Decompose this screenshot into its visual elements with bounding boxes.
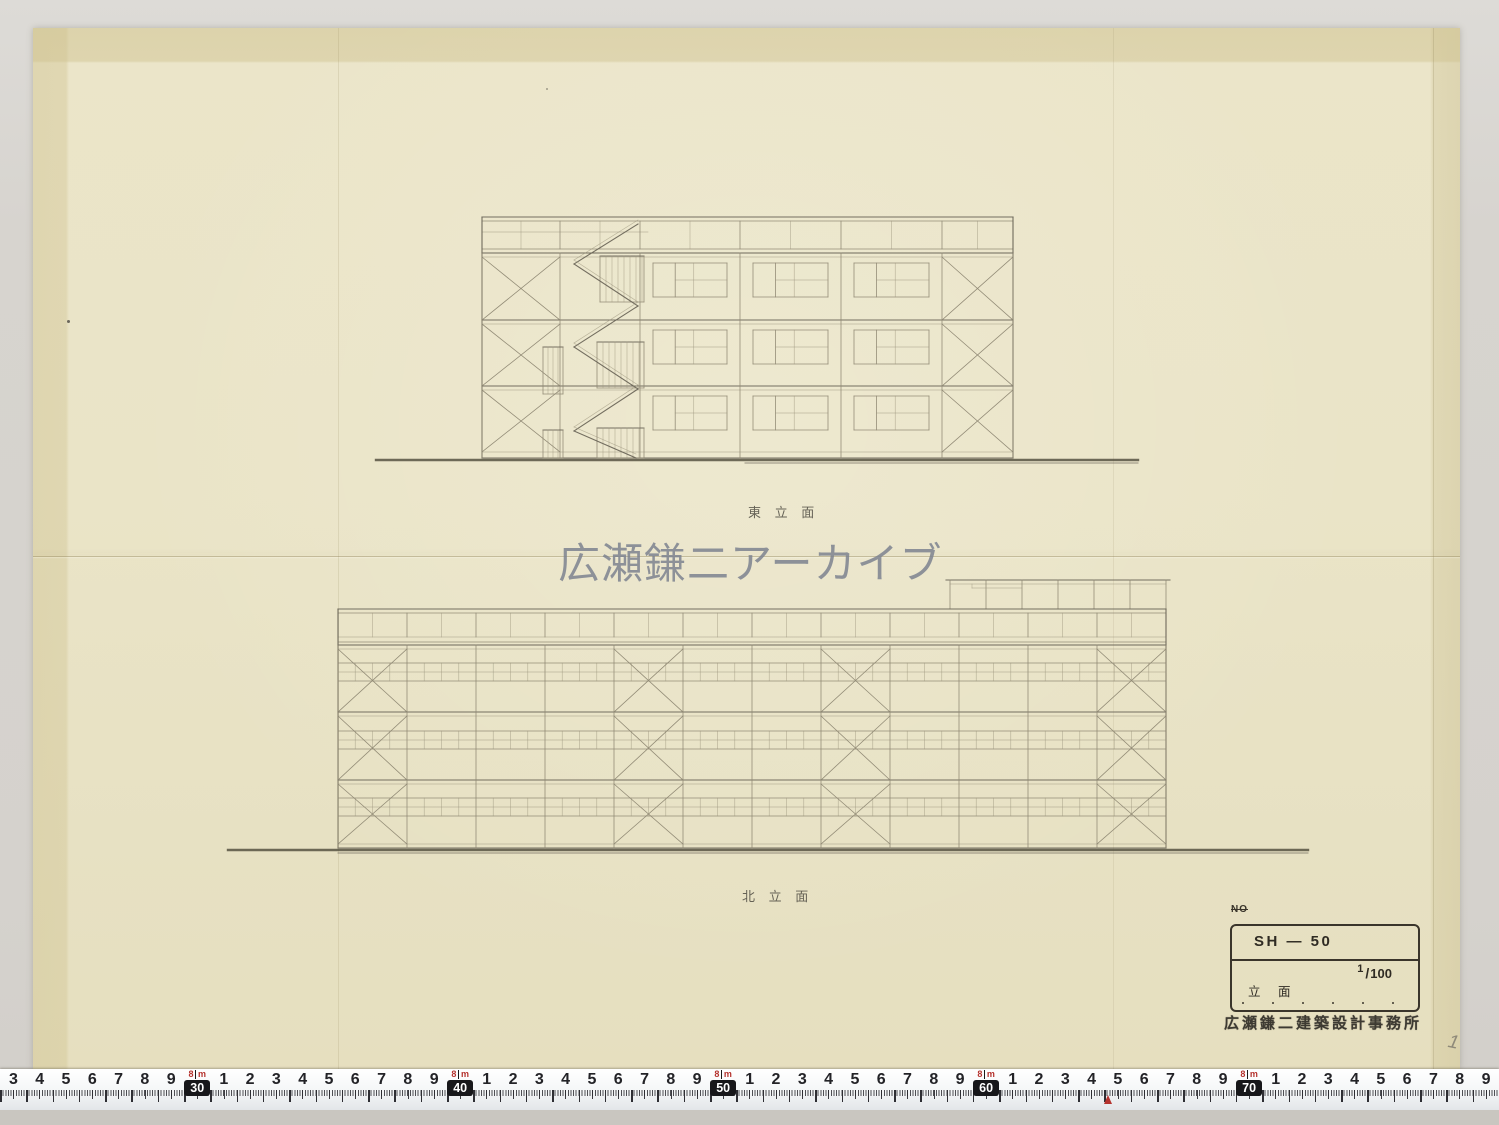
- tape-cm-number: 6: [1131, 1071, 1157, 1089]
- tape-cm-number: 3: [263, 1071, 289, 1089]
- tape-cm-cell: 8: [1183, 1069, 1209, 1110]
- tape-cm-cell: 9: [158, 1069, 184, 1110]
- tape-tick: [1039, 1090, 1040, 1099]
- tape-cm-number: 4: [1341, 1071, 1367, 1089]
- tape-cm-number: 9: [158, 1071, 184, 1089]
- tape-tick: [907, 1090, 908, 1099]
- tape-cm-number: 3: [0, 1071, 26, 1089]
- tape-tick: [1394, 1090, 1396, 1102]
- tape-cm-cell: 2: [1289, 1069, 1315, 1110]
- tape-tick: [237, 1090, 239, 1102]
- tape-tick: [592, 1090, 593, 1099]
- tape-cm-cell: 2: [500, 1069, 526, 1110]
- tape-tick: [539, 1090, 540, 1099]
- tape-tick: [1459, 1090, 1460, 1099]
- tape-tick: [434, 1090, 435, 1099]
- tape-tick: [355, 1090, 356, 1099]
- tape-tick: [263, 1090, 265, 1102]
- tape-cm-cell: 3: [0, 1069, 26, 1110]
- tape-tick: [671, 1090, 672, 1099]
- tape-cm-cell: 7: [105, 1069, 131, 1110]
- tape-tick: [276, 1090, 277, 1099]
- tape-tick: [1157, 1090, 1159, 1102]
- tape-tick: [1223, 1090, 1224, 1099]
- tape-tick: [1210, 1090, 1212, 1102]
- tape-dm-number: 30: [184, 1080, 210, 1096]
- tape-marker-group: 8m70: [1236, 1070, 1262, 1096]
- tape-cm-cell: 5: [1367, 1069, 1393, 1110]
- tape-tick: [1446, 1090, 1448, 1102]
- tape-dm-number: 60: [973, 1080, 999, 1096]
- tape-cm-cell: 4: [1341, 1069, 1367, 1110]
- tape-tick: [855, 1090, 856, 1099]
- tape-tick: [302, 1090, 303, 1099]
- tape-tick: [53, 1090, 55, 1102]
- tape-tick: [158, 1090, 160, 1102]
- tape-cm-cell: 3: [789, 1069, 815, 1110]
- tape-tick: [776, 1090, 777, 1099]
- tape-cm-number: 2: [1289, 1071, 1315, 1089]
- tape-tick: [868, 1090, 870, 1102]
- tape-tick: [1407, 1090, 1408, 1099]
- tape-cm-cell: 9: [684, 1069, 710, 1110]
- tape-cm-number: 2: [1026, 1071, 1052, 1089]
- tape-cm-number: 4: [815, 1071, 841, 1089]
- measuring-tape: 34567898m301234567898m401234567898m50123…: [0, 1069, 1499, 1110]
- tape-cm-number: 2: [500, 1071, 526, 1089]
- tape-cm-cell: 3: [526, 1069, 552, 1110]
- tape-cm-number: 1: [210, 1071, 236, 1089]
- tape-tick: [1183, 1090, 1185, 1102]
- sheet-title-label: 立 面: [1248, 981, 1297, 1000]
- scale-denominator: 100: [1370, 966, 1392, 981]
- tape-marker-group: 8m60: [973, 1070, 999, 1096]
- tape-tick: [749, 1090, 750, 1099]
- tape-tick: [105, 1090, 107, 1102]
- tape-tick: [473, 1090, 475, 1102]
- north-elevation-drawing: [228, 580, 1308, 853]
- tape-tick: [1367, 1090, 1369, 1102]
- tape-tick: [118, 1090, 119, 1099]
- tape-tick: [1262, 1090, 1264, 1102]
- tape-tick: [1341, 1090, 1343, 1102]
- tape-marker-group: 8m50: [710, 1070, 736, 1096]
- tape-cm-number: 7: [894, 1071, 920, 1089]
- tape-cm-number: 6: [1394, 1071, 1420, 1089]
- tape-cm-cell: 8: [131, 1069, 157, 1110]
- tape-cm-number: 6: [342, 1071, 368, 1089]
- tape-cm-number: 1: [736, 1071, 762, 1089]
- tape-meter-label: 8m: [714, 1070, 732, 1079]
- tape-tick: [1486, 1090, 1487, 1099]
- tape-meter-label: 8m: [977, 1070, 995, 1079]
- tape-cm-number: 8: [1183, 1071, 1209, 1089]
- tape-cm-number: 7: [1157, 1071, 1183, 1089]
- architect-stamp: 広瀬鎌二建築設計事務所: [1224, 1012, 1426, 1033]
- tape-tick: [881, 1090, 882, 1099]
- tape-tick: [684, 1090, 686, 1102]
- tape-tick: [1131, 1090, 1133, 1102]
- scale-numerator: 1: [1357, 963, 1363, 975]
- tape-cm-number: 9: [947, 1071, 973, 1089]
- tape-cm-number: 4: [1078, 1071, 1104, 1089]
- tape-tick: [552, 1090, 554, 1102]
- tape-tick: [13, 1090, 14, 1099]
- tape-cm-cell: 1: [736, 1069, 762, 1110]
- tape-tick: [342, 1090, 344, 1102]
- tape-tick: [210, 1090, 212, 1102]
- tape-tick: [815, 1090, 817, 1102]
- tape-cm-cell: 1: [1262, 1069, 1288, 1110]
- tape-cm-number: 9: [684, 1071, 710, 1089]
- east-elevation-drawing: [376, 217, 1138, 463]
- tape-cm-cell: 4: [26, 1069, 52, 1110]
- tape-cm-cell: 8: [920, 1069, 946, 1110]
- tape-cm-cell: 7: [894, 1069, 920, 1110]
- tape-tick: [39, 1090, 40, 1099]
- tape-cm-cell: 1: [473, 1069, 499, 1110]
- tape-dm-number: 70: [1236, 1080, 1262, 1096]
- tape-cm-cell: 8: [394, 1069, 420, 1110]
- tape-tick: [1289, 1090, 1291, 1102]
- tape-cm-number: 4: [552, 1071, 578, 1089]
- tape-marker-group: 8m40: [447, 1070, 473, 1096]
- tape-tick: [1302, 1090, 1303, 1099]
- tape-tick: [1078, 1090, 1080, 1102]
- tape-cm-number: 9: [1473, 1071, 1499, 1089]
- tape-tick: [131, 1090, 133, 1102]
- tape-tick: [79, 1090, 81, 1102]
- tape-cm-number: 1: [1262, 1071, 1288, 1089]
- tape-cm-cell: 2: [763, 1069, 789, 1110]
- tape-tick: [421, 1090, 423, 1102]
- tape-dm-number: 40: [447, 1080, 473, 1096]
- tape-tick: [631, 1090, 633, 1102]
- tape-cm-number: 3: [1315, 1071, 1341, 1089]
- tape-tick: [1144, 1090, 1145, 1099]
- tape-tick: [329, 1090, 330, 1099]
- tape-cm-cell: 6: [342, 1069, 368, 1110]
- tape-cm-cell: 9: [1473, 1069, 1499, 1110]
- tape-cm-number: 6: [868, 1071, 894, 1089]
- tape-tick: [289, 1090, 291, 1102]
- tape-cm-cell: 5: [53, 1069, 79, 1110]
- tape-cm-cell: 7: [1157, 1069, 1183, 1110]
- tape-cm-number: 7: [105, 1071, 131, 1089]
- tape-cm-cell: 3: [1052, 1069, 1078, 1110]
- tape-dm-marker: 8m60: [973, 1069, 999, 1110]
- title-block-top-row: SH — 50: [1232, 926, 1418, 961]
- tape-cm-cell: 1: [999, 1069, 1025, 1110]
- tape-tick: [486, 1090, 487, 1099]
- tape-dm-marker: 8m30: [184, 1069, 210, 1110]
- tape-cm-number: 5: [579, 1071, 605, 1089]
- tape-cm-number: 5: [316, 1071, 342, 1089]
- scan-background-bottom: [0, 1110, 1499, 1125]
- east-elevation-label: 東 立 面: [748, 502, 819, 521]
- tape-dm-marker: 8m70: [1236, 1069, 1262, 1110]
- tape-tick: [92, 1090, 93, 1099]
- tape-tick: [644, 1090, 645, 1099]
- drawing-number: SH — 50: [1254, 933, 1332, 950]
- tape-meter-label: 8m: [188, 1070, 206, 1079]
- no-label: NO: [1231, 904, 1248, 915]
- tape-tick: [368, 1090, 370, 1102]
- tape-tick: [526, 1090, 528, 1102]
- tape-cm-cell: 9: [1210, 1069, 1236, 1110]
- tape-cm-number: 5: [842, 1071, 868, 1089]
- tape-tick: [1275, 1090, 1276, 1099]
- tape-cm-number: 5: [53, 1071, 79, 1089]
- tape-tick: [381, 1090, 382, 1099]
- tape-tick: [250, 1090, 251, 1099]
- tape-tick: [1354, 1090, 1355, 1099]
- tape-cm-cell: 3: [263, 1069, 289, 1110]
- tape-cm-cell: 8: [1446, 1069, 1472, 1110]
- tape-tick: [947, 1090, 949, 1102]
- tape-meter-label: 8m: [1240, 1070, 1258, 1079]
- tape-tick: [618, 1090, 619, 1099]
- tape-cm-cell: 7: [631, 1069, 657, 1110]
- archive-watermark: 広瀬鎌二アーカイブ: [558, 530, 942, 591]
- tape-cm-cell: 7: [368, 1069, 394, 1110]
- tape-tick: [579, 1090, 581, 1102]
- tape-tick: [1473, 1090, 1475, 1102]
- tape-cm-number: 7: [1420, 1071, 1446, 1089]
- tape-cm-cell: 9: [947, 1069, 973, 1110]
- tape-tick: [224, 1090, 225, 1099]
- tape-tick: [789, 1090, 791, 1102]
- tape-tick: [1170, 1090, 1171, 1099]
- tape-tick: [1328, 1090, 1329, 1099]
- tape-tick: [1012, 1090, 1013, 1099]
- tape-tick: [736, 1090, 738, 1102]
- tape-cm-cell: 5: [316, 1069, 342, 1110]
- scanned-drawing-page: 広瀬鎌二アーカイブ 東 立 面 北 立 面 NO SH — 50 立 面 1/1…: [0, 0, 1499, 1125]
- tape-tick: [1065, 1090, 1066, 1099]
- tape-cm-cell: 6: [1394, 1069, 1420, 1110]
- tape-tick: [66, 1090, 67, 1099]
- tape-tick: [171, 1090, 172, 1099]
- tape-cm-number: 7: [368, 1071, 394, 1089]
- tape-tick: [920, 1090, 922, 1102]
- tape-tick: [408, 1090, 409, 1099]
- title-block-dots: [1242, 1002, 1408, 1004]
- tape-tick: [842, 1090, 844, 1102]
- tape-tick: [316, 1090, 318, 1102]
- tape-cm-number: 5: [1104, 1071, 1130, 1089]
- tape-cm-number: 9: [421, 1071, 447, 1089]
- tape-cm-number: 1: [473, 1071, 499, 1089]
- tape-cm-number: 8: [657, 1071, 683, 1089]
- tape-cm-number: 8: [394, 1071, 420, 1089]
- tape-dm-marker: 8m50: [710, 1069, 736, 1110]
- tape-cm-number: 8: [920, 1071, 946, 1089]
- tape-meter-label: 8m: [451, 1070, 469, 1079]
- tape-tick: [934, 1090, 935, 1099]
- tape-cm-cell: 6: [79, 1069, 105, 1110]
- tape-tick: [565, 1090, 566, 1099]
- tape-cm-number: 3: [789, 1071, 815, 1089]
- tape-tick: [605, 1090, 607, 1102]
- tape-cm-cell: 6: [605, 1069, 631, 1110]
- title-block: SH — 50 立 面 1/100: [1230, 924, 1420, 1012]
- tape-tick: [1381, 1090, 1382, 1099]
- tape-cm-cell: 2: [237, 1069, 263, 1110]
- tape-tick: [1052, 1090, 1054, 1102]
- tape-cm-cell: 6: [868, 1069, 894, 1110]
- tape-tick: [1091, 1090, 1092, 1099]
- tape-tick: [1118, 1090, 1119, 1099]
- tape-cm-cell: 4: [815, 1069, 841, 1110]
- tape-tick: [697, 1090, 698, 1099]
- title-block-bottom-row: 立 面 1/100: [1232, 961, 1418, 1007]
- tape-dm-marker: 8m40: [447, 1069, 473, 1110]
- tape-tick: [894, 1090, 896, 1102]
- tape-cm-cell: 4: [552, 1069, 578, 1110]
- tape-dm-number: 50: [710, 1080, 736, 1096]
- tape-cm-number: 7: [631, 1071, 657, 1089]
- tape-tick: [1026, 1090, 1028, 1102]
- tape-cm-number: 9: [1210, 1071, 1236, 1089]
- tape-cm-number: 8: [131, 1071, 157, 1089]
- tape-cm-number: 3: [1052, 1071, 1078, 1089]
- tape-cm-number: 6: [605, 1071, 631, 1089]
- tape-tick: [1315, 1090, 1317, 1102]
- tape-cm-number: 2: [237, 1071, 263, 1089]
- tape-cm-number: 4: [26, 1071, 52, 1089]
- tape-marker-group: 8m30: [184, 1070, 210, 1096]
- tape-tick: [145, 1090, 146, 1099]
- tape-tick: [828, 1090, 829, 1099]
- tape-tick: [1197, 1090, 1198, 1099]
- tape-cm-number: 6: [79, 1071, 105, 1089]
- tape-cm-cell: 6: [1131, 1069, 1157, 1110]
- tape-cm-number: 8: [1446, 1071, 1472, 1089]
- tape-tick: [513, 1090, 514, 1099]
- tape-cm-number: 3: [526, 1071, 552, 1089]
- tape-cm-cell: 4: [289, 1069, 315, 1110]
- tape-tick: [394, 1090, 396, 1102]
- tape-cm-cell: 7: [1420, 1069, 1446, 1110]
- tape-cm-cell: 3: [1315, 1069, 1341, 1110]
- tape-tick: [657, 1090, 659, 1102]
- tape-cm-number: 2: [763, 1071, 789, 1089]
- north-elevation-label: 北 立 面: [742, 886, 813, 905]
- tape-cm-cell: 5: [579, 1069, 605, 1110]
- tape-cm-cell: 2: [1026, 1069, 1052, 1110]
- tape-tick: [802, 1090, 803, 1099]
- scale-fraction: 1/100: [1357, 963, 1392, 981]
- tape-cm-cell: 8: [657, 1069, 683, 1110]
- tape-cm-number: 4: [289, 1071, 315, 1089]
- tape-tick: [960, 1090, 961, 1099]
- tape-cm-cell: 4: [1078, 1069, 1104, 1110]
- tape-tick: [500, 1090, 502, 1102]
- tape-cm-number: 1: [999, 1071, 1025, 1089]
- tape-arrow-mark: [1104, 1095, 1112, 1104]
- tape-tick: [999, 1090, 1001, 1102]
- tape-cm-cell: 9: [421, 1069, 447, 1110]
- tape-tick: [763, 1090, 765, 1102]
- tape-cm-cell: 1: [210, 1069, 236, 1110]
- tape-cm-number: 5: [1367, 1071, 1393, 1089]
- tape-tick: [0, 1090, 2, 1102]
- tape-tick: [26, 1090, 28, 1102]
- tape-tick: [1420, 1090, 1422, 1102]
- tape-cm-cell: 5: [842, 1069, 868, 1110]
- tape-tick: [1433, 1090, 1434, 1099]
